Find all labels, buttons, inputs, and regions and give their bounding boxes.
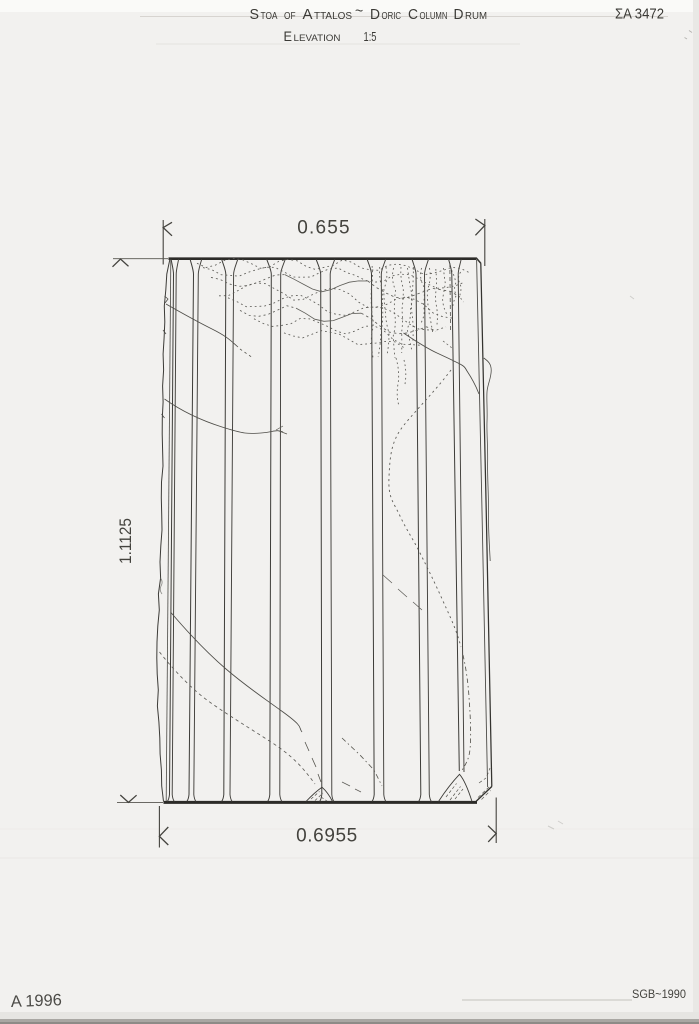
svg-text:TTALOS: TTALOS — [314, 11, 352, 22]
svg-text:RUM: RUM — [465, 11, 487, 22]
svg-text:A: A — [303, 7, 313, 23]
svg-text:OLUMN: OLUMN — [420, 11, 448, 22]
svg-text:D: D — [454, 7, 464, 23]
svg-text:A 1996: A 1996 — [11, 991, 63, 1011]
svg-text:D: D — [370, 7, 380, 23]
svg-text:LEVATION: LEVATION — [294, 33, 341, 44]
svg-text:S: S — [250, 7, 260, 23]
svg-text:0.6955: 0.6955 — [296, 826, 358, 847]
svg-text:C: C — [408, 7, 418, 23]
svg-text:0.655: 0.655 — [297, 218, 351, 239]
svg-text:ΣA 3472: ΣA 3472 — [615, 6, 664, 23]
svg-text:E: E — [284, 28, 293, 44]
svg-text:SGB~1990: SGB~1990 — [632, 989, 686, 1001]
svg-text:TOA: TOA — [261, 11, 278, 22]
svg-text:~: ~ — [355, 3, 363, 19]
svg-text:OF: OF — [284, 11, 296, 22]
svg-text:ORIC: ORIC — [382, 11, 402, 22]
svg-text:1.1125: 1.1125 — [116, 518, 135, 564]
svg-text:1:5: 1:5 — [364, 29, 377, 44]
